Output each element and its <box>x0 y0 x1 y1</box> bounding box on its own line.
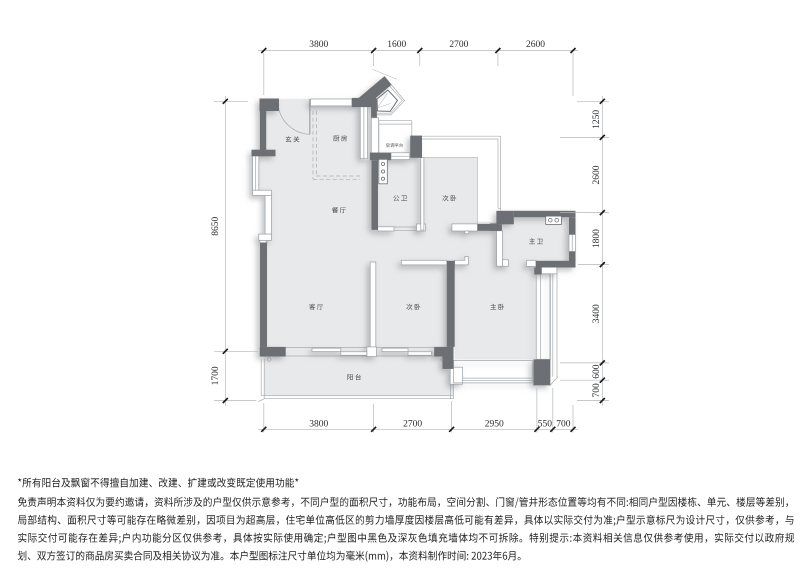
svg-text:600: 600 <box>592 364 602 379</box>
svg-text:700: 700 <box>592 383 602 398</box>
svg-text:2600: 2600 <box>526 40 545 50</box>
svg-text:2600: 2600 <box>592 165 602 184</box>
svg-text:3400: 3400 <box>592 304 602 323</box>
svg-text:3800: 3800 <box>309 419 328 429</box>
svg-text:2700: 2700 <box>449 40 468 50</box>
svg-text:8650: 8650 <box>211 217 221 236</box>
svg-text:1600: 1600 <box>387 40 406 50</box>
svg-text:550: 550 <box>538 419 553 429</box>
svg-text:1800: 1800 <box>592 229 602 248</box>
svg-text:2950: 2950 <box>485 419 504 429</box>
svg-text:2700: 2700 <box>403 419 422 429</box>
svg-text:3800: 3800 <box>309 40 328 50</box>
svg-text:1250: 1250 <box>592 110 602 129</box>
svg-text:1700: 1700 <box>211 366 221 385</box>
svg-text:700: 700 <box>556 419 571 429</box>
